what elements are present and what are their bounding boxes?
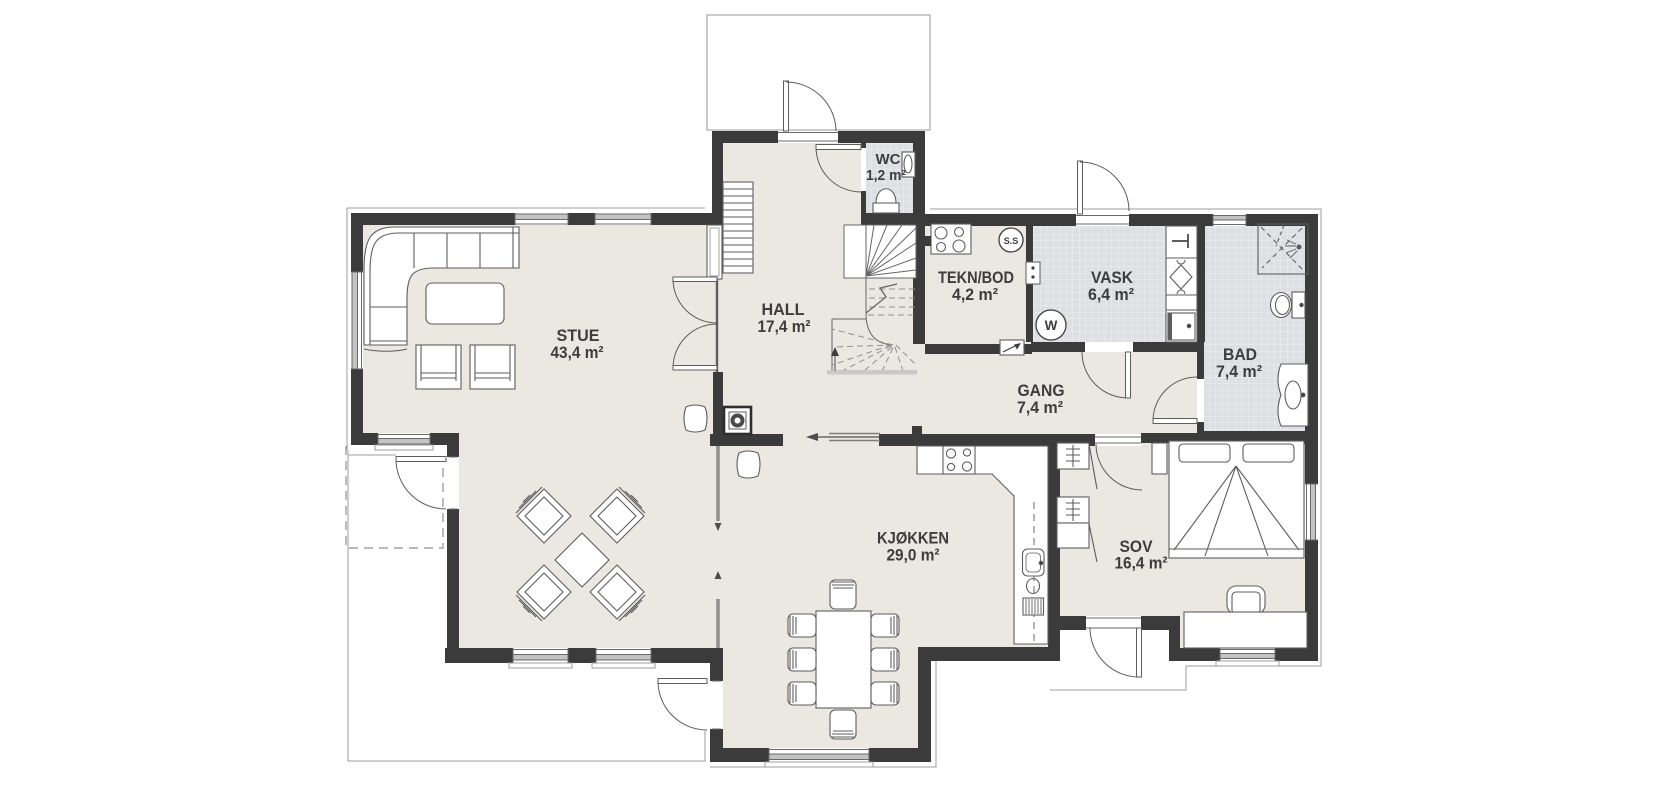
svg-text:S.S: S.S: [1004, 236, 1019, 246]
svg-text:SOV: SOV: [1120, 538, 1153, 556]
svg-text:1,2 m²: 1,2 m²: [866, 168, 906, 184]
svg-text:BAD: BAD: [1223, 346, 1257, 364]
svg-text:43,4 m²: 43,4 m²: [551, 344, 604, 362]
svg-text:4,2 m²: 4,2 m²: [952, 286, 998, 304]
svg-text:HALL: HALL: [762, 301, 805, 319]
svg-text:7,4 m²: 7,4 m²: [1017, 399, 1063, 417]
svg-text:VASK: VASK: [1091, 269, 1133, 287]
svg-text:W: W: [1045, 318, 1058, 333]
svg-text:WC: WC: [876, 152, 902, 168]
svg-text:TEKN/BOD: TEKN/BOD: [938, 269, 1014, 287]
svg-text:STUE: STUE: [557, 327, 600, 345]
svg-text:17,4 m²: 17,4 m²: [758, 318, 811, 336]
svg-text:7,4 m²: 7,4 m²: [1216, 363, 1262, 381]
svg-text:29,0 m²: 29,0 m²: [887, 547, 940, 565]
svg-text:KJØKKEN: KJØKKEN: [877, 530, 949, 548]
svg-text:16,4 m²: 16,4 m²: [1115, 555, 1168, 573]
svg-text:6,4 m²: 6,4 m²: [1088, 286, 1134, 304]
svg-text:GANG: GANG: [1018, 382, 1065, 400]
